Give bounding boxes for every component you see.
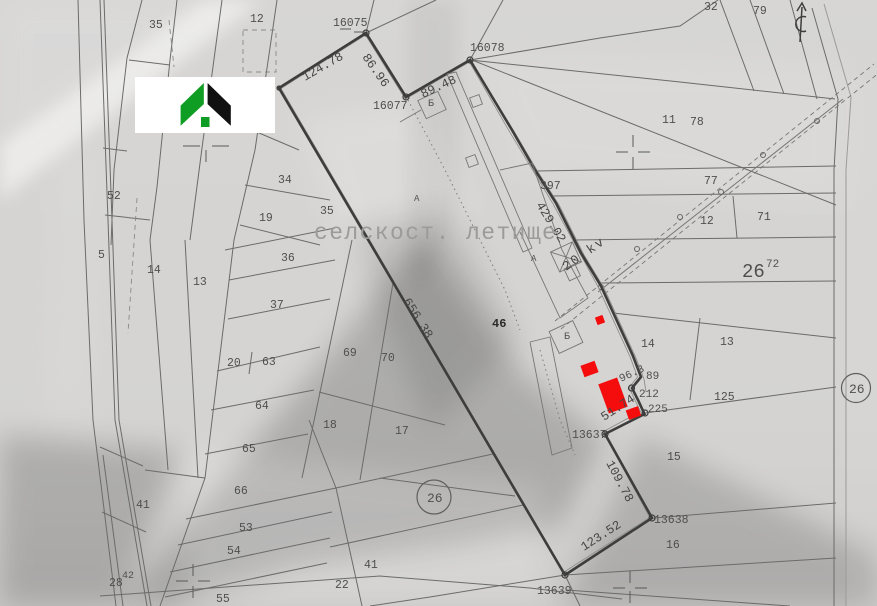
svg-text:34: 34 [278,174,292,187]
svg-text:26: 26 [427,491,443,506]
svg-text:12: 12 [250,13,264,26]
svg-text:55: 55 [216,593,230,606]
svg-text:54: 54 [227,545,241,558]
svg-text:18: 18 [323,419,337,432]
svg-text:13637: 13637 [572,429,607,442]
svg-text:64: 64 [255,400,269,413]
svg-text:35: 35 [149,19,163,32]
svg-text:22: 22 [335,579,349,592]
svg-text:32: 32 [704,1,718,14]
svg-text:52: 52 [107,190,121,203]
svg-text:11: 11 [662,114,676,127]
svg-text:89: 89 [646,371,659,383]
svg-text:69: 69 [343,347,357,360]
svg-text:70: 70 [381,352,395,365]
svg-text:78: 78 [690,116,704,129]
svg-text:13638: 13638 [654,514,689,527]
svg-text:53: 53 [239,522,253,535]
svg-text:37: 37 [270,299,284,312]
svg-text:35: 35 [320,205,334,218]
svg-text:14: 14 [147,264,161,277]
svg-text:19: 19 [259,212,273,225]
svg-text:16077: 16077 [373,100,408,113]
svg-text:13: 13 [193,276,207,289]
svg-text:26: 26 [849,382,865,397]
svg-text:66: 66 [234,485,248,498]
svg-text:Б: Б [564,332,570,343]
svg-text:63: 63 [262,356,276,369]
svg-text:36: 36 [281,252,295,265]
svg-text:13639: 13639 [537,585,572,598]
svg-text:397: 397 [540,180,561,193]
svg-text:13: 13 [720,336,734,349]
svg-text:71: 71 [757,211,771,224]
svg-text:А: А [531,254,537,264]
svg-text:16: 16 [666,539,680,552]
svg-text:селскост. летище: селскост. летище [314,220,557,246]
svg-text:12: 12 [700,215,714,228]
svg-text:125: 125 [714,391,735,404]
svg-text:28: 28 [109,577,123,590]
svg-text:41: 41 [136,499,150,512]
svg-text:79: 79 [753,5,767,18]
svg-text:16075: 16075 [333,17,368,30]
svg-text:46: 46 [492,317,506,331]
svg-text:225: 225 [648,404,668,416]
svg-text:65: 65 [242,443,256,456]
svg-text:42: 42 [122,571,134,582]
svg-text:212: 212 [639,389,659,401]
svg-text:А: А [414,194,420,204]
svg-text:16078: 16078 [470,42,505,55]
svg-text:Б: Б [428,99,434,110]
svg-text:77: 77 [704,175,718,188]
svg-text:15: 15 [667,451,681,464]
svg-text:20: 20 [227,357,241,370]
svg-text:17: 17 [395,425,409,438]
svg-text:41: 41 [364,559,378,572]
svg-text:26: 26 [742,261,765,283]
svg-text:72: 72 [766,259,779,271]
svg-text:14: 14 [641,338,655,351]
svg-text:5: 5 [98,249,105,262]
